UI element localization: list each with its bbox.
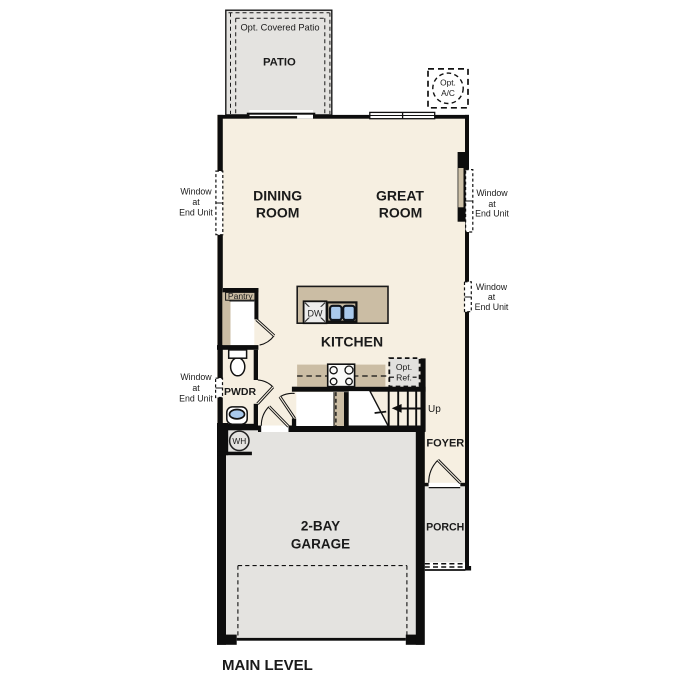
svg-text:DINING: DINING <box>253 187 302 203</box>
svg-text:ROOM: ROOM <box>256 204 300 220</box>
svg-text:DW: DW <box>308 308 323 318</box>
svg-text:PATIO: PATIO <box>263 57 296 69</box>
svg-text:Window: Window <box>476 282 508 292</box>
svg-text:ROOM: ROOM <box>379 204 423 220</box>
svg-text:WH: WH <box>232 436 246 446</box>
svg-text:FOYER: FOYER <box>426 438 464 450</box>
svg-text:Window: Window <box>476 188 508 198</box>
svg-text:Pantry: Pantry <box>228 291 254 301</box>
svg-text:GREAT: GREAT <box>376 187 424 203</box>
svg-text:PORCH: PORCH <box>426 521 464 533</box>
svg-text:at: at <box>192 383 200 393</box>
svg-text:Up: Up <box>428 404 441 415</box>
svg-text:Ref.: Ref. <box>396 373 412 383</box>
svg-text:at: at <box>488 292 496 302</box>
svg-text:Window: Window <box>180 372 212 382</box>
svg-text:2-BAY: 2-BAY <box>301 519 340 534</box>
svg-text:at: at <box>488 199 496 209</box>
svg-text:End Unit: End Unit <box>475 209 509 219</box>
svg-text:End Unit: End Unit <box>475 302 509 312</box>
svg-text:A/C: A/C <box>441 88 455 98</box>
svg-text:Opt.: Opt. <box>396 362 412 372</box>
svg-text:MAIN LEVEL: MAIN LEVEL <box>222 657 313 674</box>
svg-text:at: at <box>192 197 200 207</box>
svg-text:GARAGE: GARAGE <box>291 536 350 551</box>
svg-text:End Unit: End Unit <box>179 394 213 404</box>
svg-text:Opt.: Opt. <box>440 78 456 88</box>
svg-text:Opt. Covered Patio: Opt. Covered Patio <box>240 22 319 32</box>
svg-text:Window: Window <box>180 187 212 197</box>
svg-text:KITCHEN: KITCHEN <box>321 333 383 349</box>
svg-text:End Unit: End Unit <box>179 208 213 218</box>
svg-text:PWDR: PWDR <box>224 386 256 398</box>
